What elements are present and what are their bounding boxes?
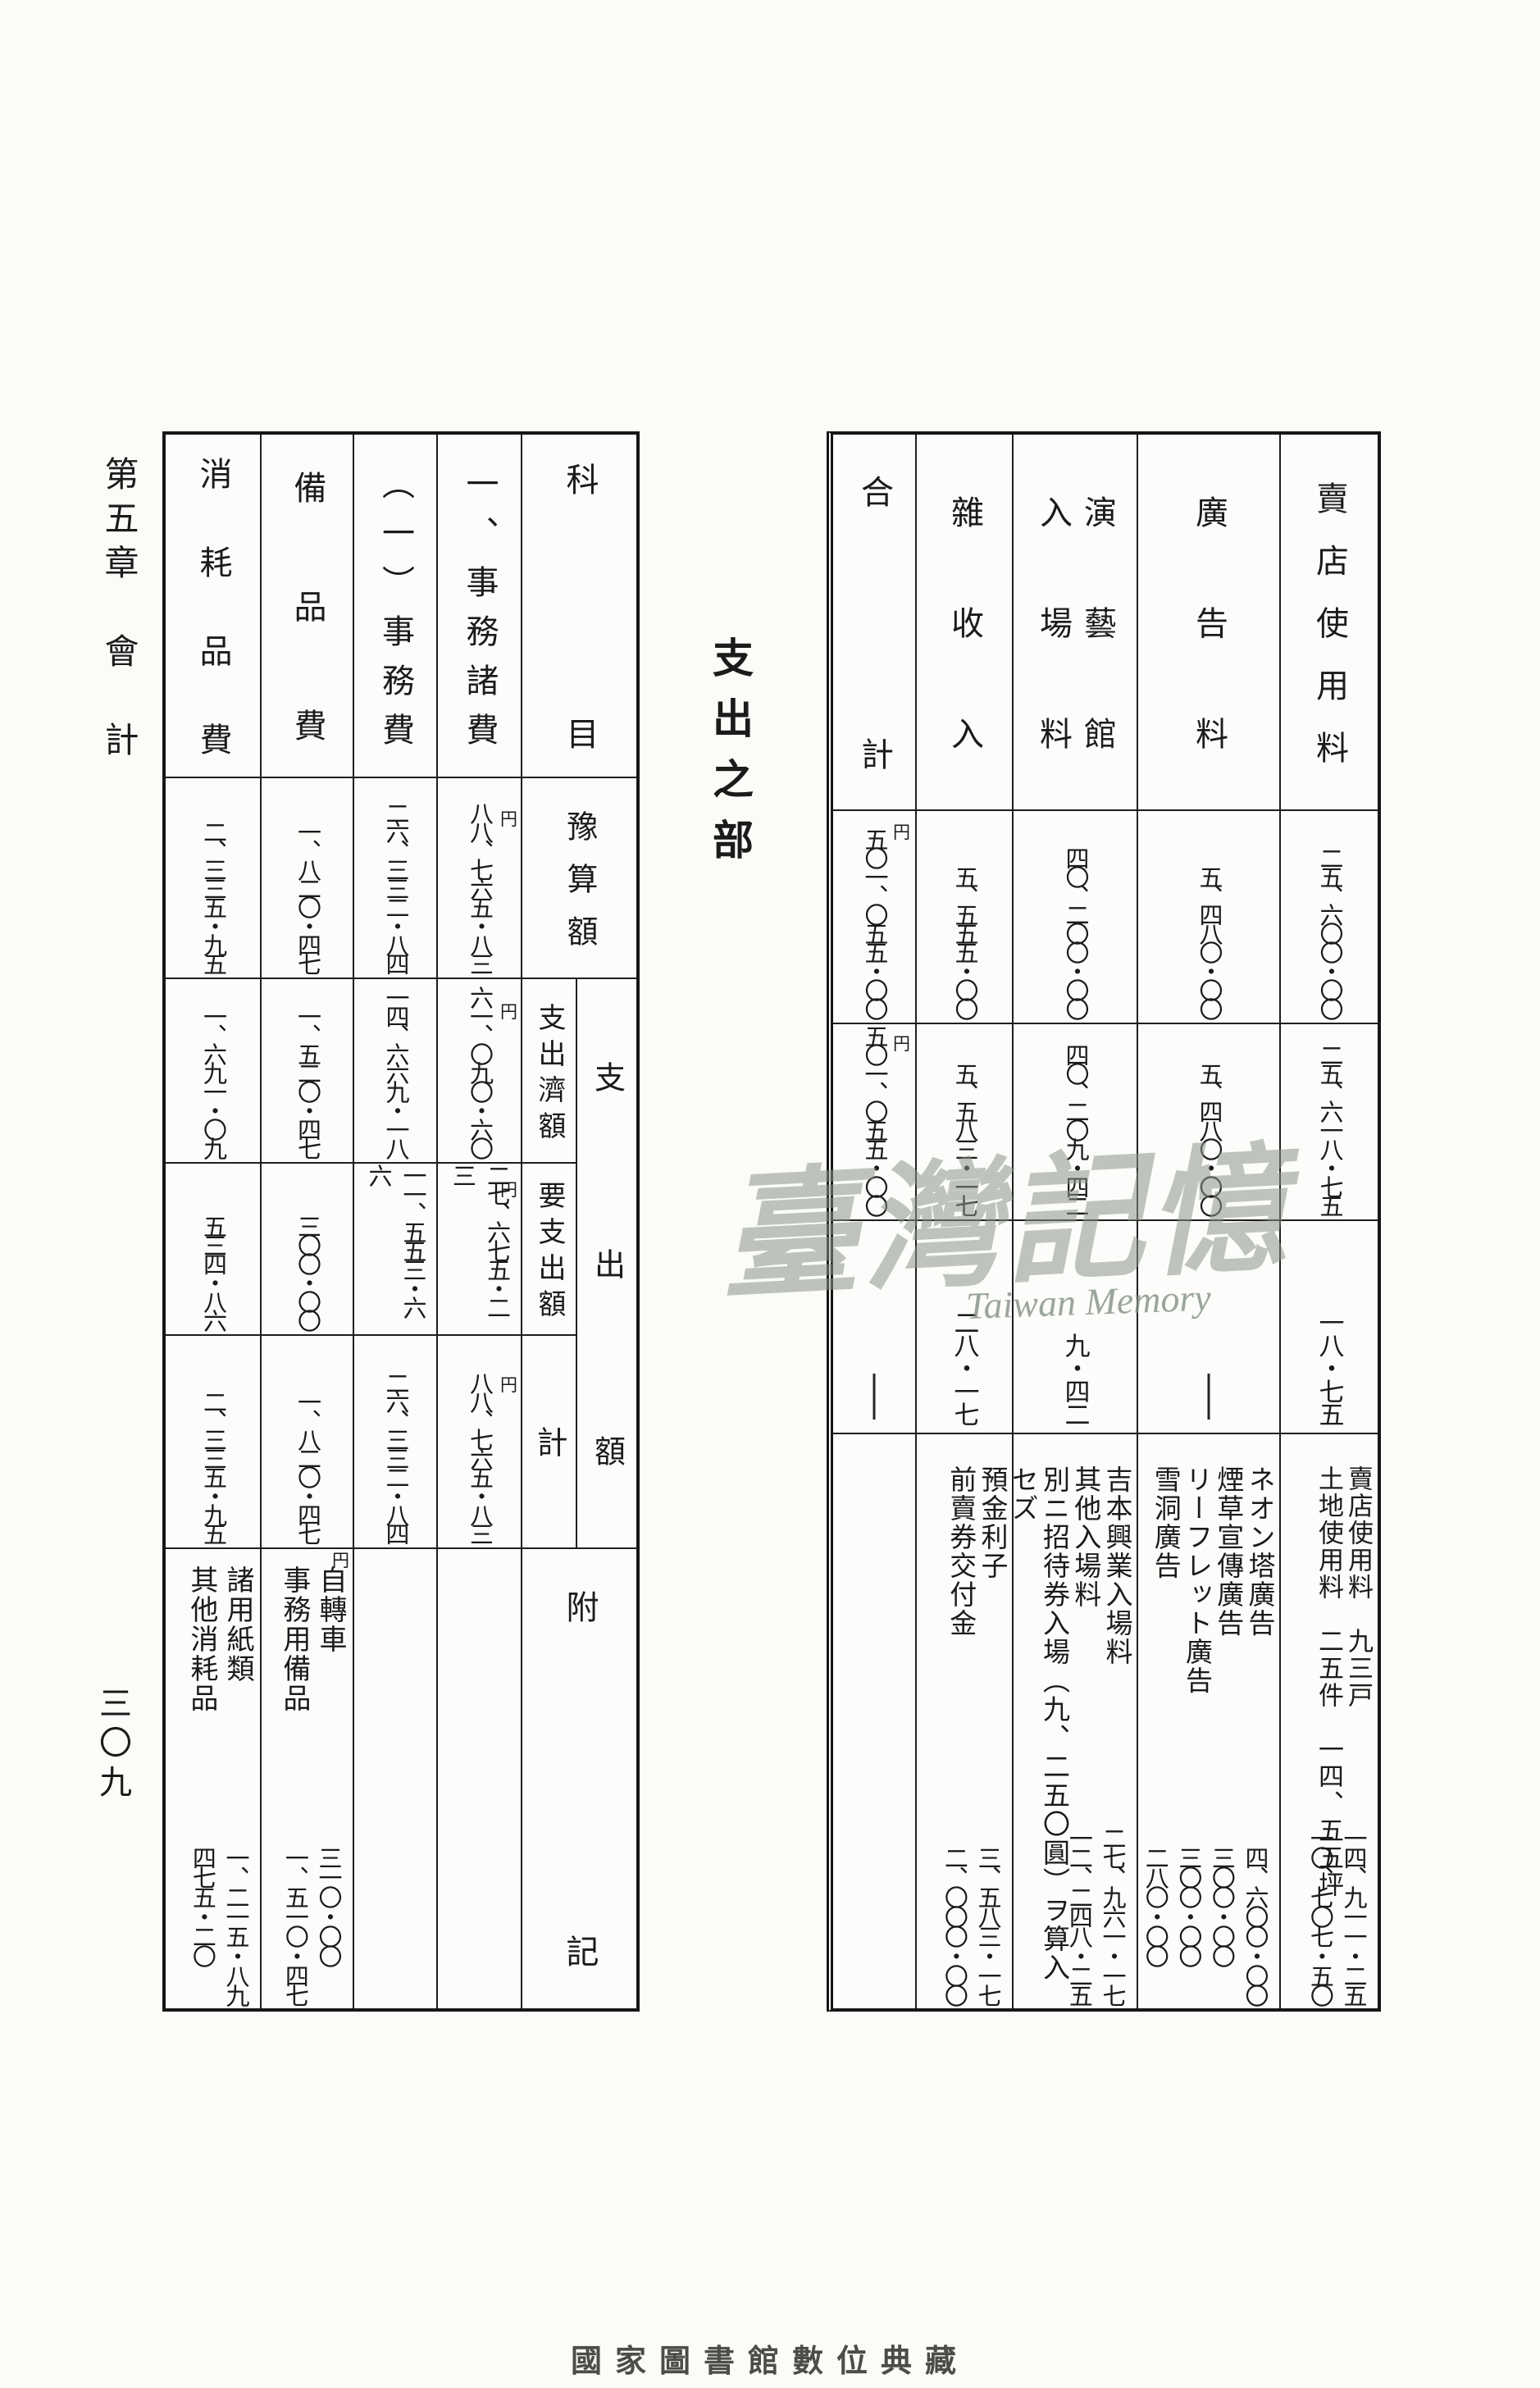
income-ads-note-cell: ネオン塔廣告 煙草宣傳廣告 リーフレット廣告 雪洞廣告 四、六〇〇・〇〇 三〇〇… bbox=[1138, 1434, 1279, 2008]
income-shop-excess-cell: 一八・七五 bbox=[1281, 1221, 1378, 1434]
income-misc-excess: 二八・一七 bbox=[946, 1310, 983, 1424]
expense-consumables-note-text: 諸用紙類 其他消耗品 bbox=[183, 1565, 255, 1713]
expense-col-general: 一、事務諸費 八八、七六五・八三 円 六一、〇九〇・六〇 円 二七、六七五・二三… bbox=[438, 435, 522, 2008]
income-theater-budget: 四〇、二〇〇・〇〇 bbox=[1058, 846, 1092, 1016]
income-total-budget-cell: 五〇一、〇五五・〇〇 円 bbox=[833, 811, 915, 1024]
expense-general-total: 八八、七六五・八三 bbox=[462, 1371, 497, 1541]
income-theater-received-cell: 四〇、二〇九・四二 bbox=[1014, 1024, 1137, 1221]
expense-general-label: 一、事務諸費 bbox=[456, 467, 503, 762]
expense-office-topay-cell: 一一、五五三・六六 bbox=[354, 1164, 436, 1336]
expense-consumables-budget: 二、三三五・九五 bbox=[196, 820, 230, 971]
expense-general-note-cell bbox=[438, 1549, 521, 2008]
income-ads-received: 五、四八〇・〇〇 bbox=[1191, 1062, 1226, 1213]
nil-dash bbox=[873, 1374, 876, 1420]
yen-mark: 円 bbox=[893, 1031, 910, 1055]
expense-notes-label: 附記 bbox=[556, 1590, 604, 2008]
expense-equipment-total: 一、八二〇・四七 bbox=[290, 1390, 325, 1541]
expense-table: 消耗品費 二、三三五・九五 一、六九一・〇九 五三四・八六 二、三三五・九五 諸… bbox=[162, 431, 640, 2012]
income-theater-note-amounts: 二七、九六一・一七 一二、二四八・二五 bbox=[1062, 1826, 1128, 2003]
expense-office-paid: 一四、六六九・一八 bbox=[378, 986, 412, 1155]
expense-budget-label: 豫算額 bbox=[557, 810, 602, 968]
expense-office-total-cell: 二六、三三二・八四 bbox=[354, 1336, 436, 1549]
income-misc-note-amounts: 三、五八三・一七 二、〇〇〇・〇〇 bbox=[937, 1846, 1004, 2003]
income-ads-budget-cell: 五、四八〇・〇〇 bbox=[1138, 811, 1279, 1024]
income-theater-excess: 九・四二 bbox=[1057, 1333, 1094, 1424]
yen-mark: 円 bbox=[500, 1177, 517, 1201]
page-number: 三〇九 bbox=[89, 1686, 136, 1804]
expense-kamoku-cell: 科目 bbox=[522, 435, 636, 778]
income-table: 合計 五〇一、〇五五・〇〇 円 五〇一、〇五五・〇〇 円 雜收入 五、五五五・〇… bbox=[827, 431, 1381, 2012]
expense-paid-label: 支出濟額 bbox=[529, 1003, 569, 1147]
expense-equipment-paid-cell: 一、五二〇・四七 bbox=[262, 979, 353, 1164]
yen-mark: 円 bbox=[500, 1372, 517, 1397]
income-ads-excess-cell bbox=[1138, 1221, 1279, 1434]
expense-general-budget-cell: 八八、七六五・八三 円 bbox=[438, 778, 521, 979]
income-theater-note-cell: 吉本興業入場料 其他入場料 別ニ招待券入場（九、二五〇圓）ヲ算入セズ 二七、九六… bbox=[1014, 1434, 1137, 2008]
expense-consumables-note-amounts: 一、二一五・八九 四七五・二〇 bbox=[185, 1846, 252, 2003]
income-total-received: 五〇一、〇五五・〇〇 bbox=[857, 1024, 891, 1213]
income-shop-header: 賣店使用料 bbox=[1281, 435, 1378, 811]
expense-group-rowheader: 支出額 bbox=[577, 979, 636, 1547]
expense-office-label: （一）事務費 bbox=[371, 467, 419, 762]
expense-equipment-topay-cell: 三〇〇・〇〇 bbox=[262, 1164, 353, 1336]
expense-general-header: 一、事務諸費 bbox=[438, 435, 521, 778]
expense-equipment-note-amounts: 三一〇・〇〇 一、五一〇・四七 bbox=[278, 1846, 344, 2003]
expense-general-total-cell: 八八、七六五・八三 円 bbox=[438, 1336, 521, 1549]
expense-consumables-paid-cell: 一、六九一・〇九 bbox=[166, 979, 260, 1164]
expense-general-topay-cell: 二七、六七五・二三 円 bbox=[438, 1164, 521, 1336]
income-shop-received: 二五、六一八・七五 bbox=[1312, 1043, 1346, 1213]
income-total-note-cell bbox=[833, 1434, 915, 2008]
expense-subrow-labels: 支出濟額 要支出額 計 bbox=[522, 979, 577, 1547]
yen-mark: 円 bbox=[332, 1549, 349, 1762]
yen-mark: 円 bbox=[893, 819, 910, 844]
income-total-budget: 五〇一、〇五五・〇〇 bbox=[857, 827, 891, 1016]
expense-col-equipment: 備品費 一、八二〇・四七 一、五二〇・四七 三〇〇・〇〇 一、八二〇・四七 自轉… bbox=[262, 435, 354, 2008]
income-ads-label: 廣告料 bbox=[1185, 495, 1232, 812]
income-total-received-cell: 五〇一、〇五五・〇〇 円 bbox=[833, 1024, 915, 1221]
expense-kamoku-label: 科目 bbox=[556, 463, 604, 779]
expense-paid-rowheader: 支出濟額 bbox=[522, 979, 576, 1164]
income-shop-label: 賣店使用料 bbox=[1305, 481, 1353, 793]
expense-consumables-label: 消耗品費 bbox=[189, 457, 237, 779]
expense-consumables-budget-cell: 二、三三五・九五 bbox=[166, 778, 260, 979]
expense-equipment-budget: 一、八二〇・四七 bbox=[290, 820, 325, 971]
footer-credit: 國家圖書館數位典藏 bbox=[0, 2336, 1540, 2381]
income-misc-budget: 五、五五五・〇〇 bbox=[947, 865, 982, 1016]
income-col-total: 合計 五〇一、〇五五・〇〇 円 五〇一、〇五五・〇〇 円 bbox=[833, 435, 917, 2008]
income-shop-note-amounts: 一四、九一一・二五 一〇、七〇七・五〇 bbox=[1303, 1826, 1369, 2003]
income-shop-budget: 二五、六〇〇・〇〇 bbox=[1312, 846, 1346, 1016]
income-misc-budget-cell: 五、五五五・〇〇 bbox=[917, 811, 1012, 1024]
expense-col-office: （一）事務費 二六、三三二・八四 一四、六六九・一八 一一、五五三・六六 二六、… bbox=[354, 435, 438, 2008]
income-col-shop: 賣店使用料 二五、六〇〇・〇〇 二五、六一八・七五 一八・七五 賣店使用料 九三… bbox=[1281, 435, 1378, 2008]
income-misc-note-text: 預金利子 前賣券交付金 bbox=[944, 1465, 1007, 1638]
expense-office-paid-cell: 一四、六六九・一八 bbox=[354, 979, 436, 1164]
income-misc-label: 雜收入 bbox=[941, 495, 988, 812]
expense-col-consumables: 消耗品費 二、三三五・九五 一、六九一・〇九 五三四・八六 二、三三五・九五 諸… bbox=[166, 435, 262, 2008]
expense-consumables-topay: 五三四・八六 bbox=[196, 1215, 230, 1328]
income-shop-excess: 一八・七五 bbox=[1311, 1310, 1348, 1424]
expense-office-header: （一）事務費 bbox=[354, 435, 436, 778]
income-total-label: 合計 bbox=[850, 475, 898, 812]
income-misc-received: 五、五八三・一七 bbox=[947, 1062, 982, 1213]
income-ads-header: 廣告料 bbox=[1138, 435, 1279, 811]
expense-group-label: 支出額 bbox=[585, 1061, 630, 1622]
expense-equipment-budget-cell: 一、八二〇・四七 bbox=[262, 778, 353, 979]
expense-equipment-label: 備品費 bbox=[284, 471, 331, 779]
nil-dash bbox=[1208, 1374, 1210, 1420]
expense-office-total: 二六、三三二・八四 bbox=[378, 1371, 412, 1541]
income-theater-budget-cell: 四〇、二〇〇・〇〇 bbox=[1014, 811, 1137, 1024]
expense-budget-rowheader: 豫算額 bbox=[522, 778, 636, 979]
expense-consumables-total: 二、三三五・九五 bbox=[196, 1390, 230, 1541]
chapter-title: 第五章 會 計 bbox=[93, 456, 144, 766]
section-title: 支出之部 bbox=[700, 636, 759, 879]
expense-general-paid: 六一、〇九〇・六〇 bbox=[462, 986, 497, 1155]
expense-office-topay: 一一、五五三・六六 bbox=[361, 1164, 430, 1328]
expense-equipment-note-cell: 自轉車 事務用備品 三一〇・〇〇 一、五一〇・四七 円 bbox=[262, 1549, 353, 2008]
expense-office-note-cell bbox=[354, 1549, 436, 2008]
expense-consumables-header: 消耗品費 bbox=[166, 435, 260, 778]
expense-topay-label: 要支出額 bbox=[529, 1181, 569, 1325]
expense-notes-rowheader: 附記 bbox=[522, 1549, 636, 2008]
expense-split-rowheaders: 支出濟額 要支出額 計 支出額 bbox=[522, 979, 636, 1549]
income-shop-note-cell: 賣店使用料 九三戸 土地使用料 二五件 一四、五五坪 一四、九一一・二五 一〇、… bbox=[1281, 1434, 1378, 2008]
expense-topay-rowheader: 要支出額 bbox=[522, 1164, 576, 1336]
expense-office-budget-cell: 二六、三三二・八四 bbox=[354, 778, 436, 979]
income-total-excess-cell bbox=[833, 1221, 915, 1434]
income-theater-header: 演藝館 入場料 bbox=[1014, 435, 1137, 811]
income-misc-received-cell: 五、五八三・一七 bbox=[917, 1024, 1012, 1221]
income-shop-budget-cell: 二五、六〇〇・〇〇 bbox=[1281, 811, 1378, 1024]
income-misc-note-cell: 預金利子 前賣券交付金 三、五八三・一七 二、〇〇〇・〇〇 bbox=[917, 1434, 1012, 2008]
income-total-header: 合計 bbox=[833, 435, 915, 811]
expense-equipment-paid: 一、五二〇・四七 bbox=[290, 1005, 325, 1155]
income-col-theater: 演藝館 入場料 四〇、二〇〇・〇〇 四〇、二〇九・四二 九・四二 吉本興業入場料… bbox=[1014, 435, 1138, 2008]
expense-consumables-note-cell: 諸用紙類 其他消耗品 一、二一五・八九 四七五・二〇 bbox=[166, 1549, 260, 2008]
expense-header-column: 科目 豫算額 支出濟額 要支出額 計 支出額 附記 bbox=[522, 435, 636, 2008]
expense-total-label: 計 bbox=[526, 1426, 572, 1457]
income-ads-note-text: ネオン塔廣告 煙草宣傳廣告 リーフレット廣告 雪洞廣告 bbox=[1149, 1465, 1274, 1695]
expense-consumables-total-cell: 二、三三五・九五 bbox=[166, 1336, 260, 1549]
income-col-misc: 雜收入 五、五五五・〇〇 五、五八三・一七 二八・一七 預金利子 前賣券交付金 … bbox=[917, 435, 1014, 2008]
expense-equipment-total-cell: 一、八二〇・四七 bbox=[262, 1336, 353, 1549]
yen-mark: 円 bbox=[500, 999, 517, 1023]
expense-consumables-topay-cell: 五三四・八六 bbox=[166, 1164, 260, 1336]
income-theater-received: 四〇、二〇九・四二 bbox=[1058, 1043, 1092, 1213]
expense-consumables-paid: 一、六九一・〇九 bbox=[196, 1005, 230, 1155]
yen-mark: 円 bbox=[500, 806, 517, 831]
income-shop-received-cell: 二五、六一八・七五 bbox=[1281, 1024, 1378, 1221]
income-col-ads: 廣告料 五、四八〇・〇〇 五、四八〇・〇〇 ネオン塔廣告 煙草宣傳廣告 リーフレ… bbox=[1138, 435, 1281, 2008]
expense-general-paid-cell: 六一、〇九〇・六〇 円 bbox=[438, 979, 521, 1164]
income-misc-excess-cell: 二八・一七 bbox=[917, 1221, 1012, 1434]
income-theater-label: 演藝館 入場料 bbox=[1031, 495, 1119, 812]
income-ads-note-amounts: 四、六〇〇・〇〇 三〇〇・〇〇 三〇〇・〇〇 二八〇・〇〇 bbox=[1138, 1846, 1271, 2003]
income-ads-budget: 五、四八〇・〇〇 bbox=[1191, 865, 1226, 1016]
expense-office-budget: 二六、三三二・八四 bbox=[378, 801, 412, 971]
expense-equipment-topay: 三〇〇・〇〇 bbox=[290, 1215, 325, 1328]
expense-total-rowheader: 計 bbox=[522, 1336, 576, 1547]
expense-general-budget: 八八、七六五・八三 bbox=[462, 801, 497, 971]
expense-equipment-header: 備品費 bbox=[262, 435, 353, 778]
income-ads-received-cell: 五、四八〇・〇〇 bbox=[1138, 1024, 1279, 1221]
income-misc-header: 雜收入 bbox=[917, 435, 1012, 811]
income-theater-excess-cell: 九・四二 bbox=[1014, 1221, 1137, 1434]
